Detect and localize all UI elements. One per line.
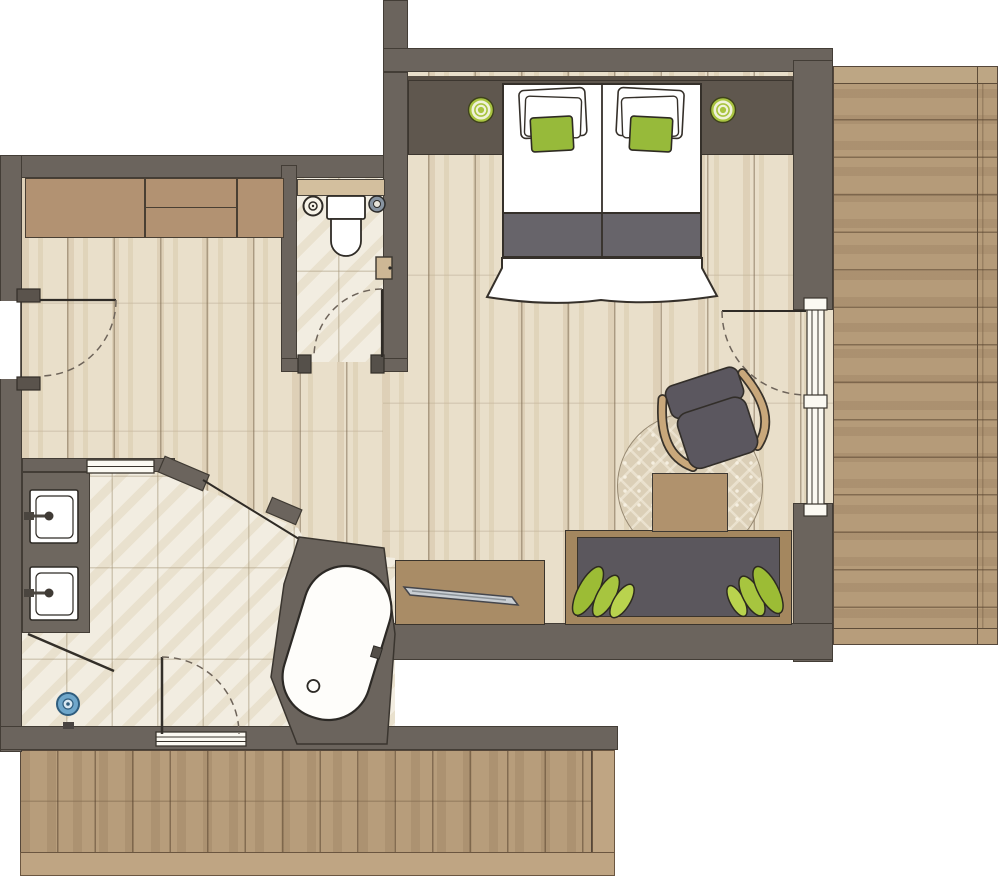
bedside-lamp-right-icon (711, 98, 736, 123)
bathroom-wall-pier-b (266, 497, 302, 524)
toilet-roll-holder-icon (304, 197, 323, 216)
bed-pillows-left (519, 87, 587, 152)
bathroom-wall-pier-a (158, 456, 209, 490)
wc-door-stop-left (298, 355, 311, 373)
entrance-door-swing-arc (40, 300, 116, 376)
wc-door-swing-arc (314, 289, 382, 357)
wc-cabinet-handle (388, 266, 391, 269)
bathroom-window (156, 732, 246, 746)
terrace-glass-door (804, 298, 827, 516)
entrance-jamb-top (17, 289, 40, 302)
shower-partition (28, 634, 114, 671)
tv-flatscreen (404, 587, 518, 605)
shower-door-swing-arc (162, 657, 239, 734)
shower-drain-icon (57, 693, 79, 715)
bedside-lamp-left-icon (469, 98, 494, 123)
sofa-cushions-right (723, 562, 789, 619)
toilet (327, 196, 365, 256)
bathroom-sliding-door (87, 460, 154, 473)
bed-pillows-right (616, 87, 684, 152)
detail-overlay (0, 0, 1000, 891)
floor-plan-canvas (0, 0, 1000, 891)
entrance-jamb-bottom (17, 377, 40, 390)
washbasin-bottom (24, 567, 78, 620)
entrance-opening (0, 301, 20, 379)
wc-door-stop-right (371, 355, 384, 373)
sofa-cushions-left (566, 562, 638, 621)
shower-floor-fixture (63, 722, 74, 729)
bed-sheet (487, 258, 717, 303)
wc-wall-fixture-icon (369, 196, 385, 212)
washbasin-top (24, 490, 78, 543)
